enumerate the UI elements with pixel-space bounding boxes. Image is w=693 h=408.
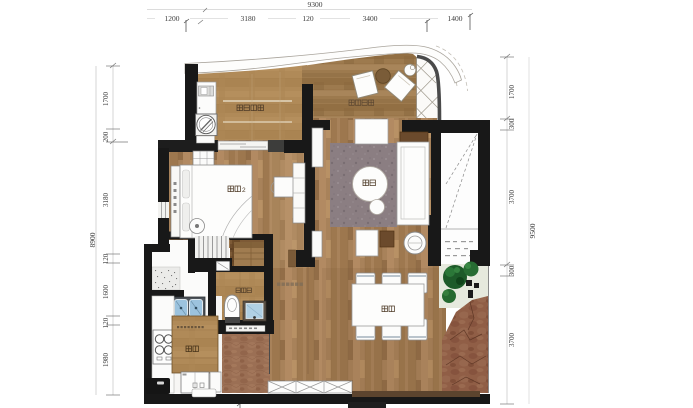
svg-text:8900: 8900 <box>88 232 97 247</box>
svg-text:3700: 3700 <box>508 190 516 205</box>
svg-text:1200: 1200 <box>165 14 180 23</box>
svg-text:1700: 1700 <box>508 85 516 100</box>
svg-text:120: 120 <box>102 253 110 264</box>
svg-text:3180: 3180 <box>241 14 256 23</box>
svg-text:300: 300 <box>508 265 516 276</box>
svg-text:120: 120 <box>102 317 110 328</box>
svg-text:2: 2 <box>242 187 246 194</box>
svg-text:3400: 3400 <box>363 14 378 23</box>
svg-text:300: 300 <box>508 118 516 129</box>
svg-text:1400: 1400 <box>448 14 463 23</box>
svg-text:1980: 1980 <box>102 353 110 368</box>
svg-text:120: 120 <box>302 14 314 23</box>
svg-text:9500: 9500 <box>528 223 537 238</box>
svg-text:3180: 3180 <box>102 193 110 208</box>
svg-text:1600: 1600 <box>102 285 110 300</box>
svg-text:3700: 3700 <box>508 333 516 348</box>
svg-text:1700: 1700 <box>102 92 110 107</box>
svg-text:200: 200 <box>102 131 110 142</box>
svg-text:9300: 9300 <box>308 0 323 9</box>
